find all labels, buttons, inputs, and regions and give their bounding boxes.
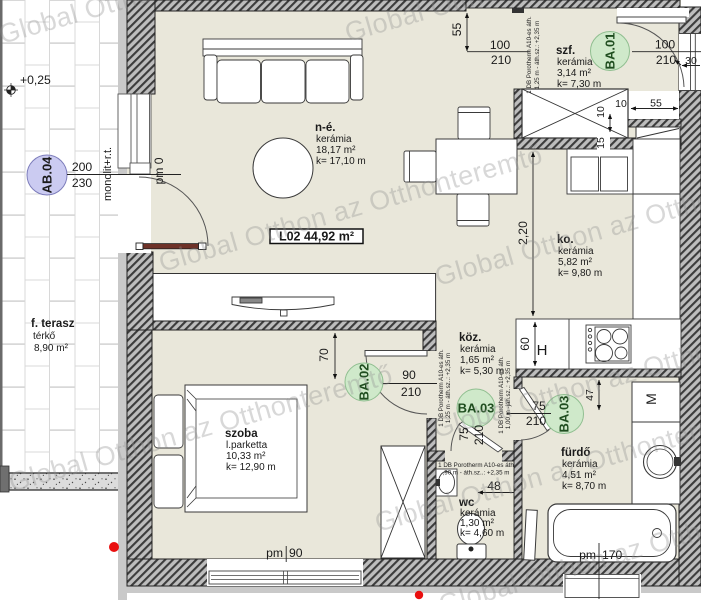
svg-text:90: 90 <box>402 368 416 382</box>
svg-text:10,33 m²: 10,33 m² <box>226 451 266 462</box>
svg-text:10: 10 <box>595 106 607 118</box>
svg-text:3,14 m²: 3,14 m² <box>557 68 592 79</box>
svg-text:BA.01: BA.01 <box>603 33 618 70</box>
svg-text:M: M <box>643 393 659 405</box>
svg-text:55: 55 <box>650 98 662 110</box>
svg-text:k= 12,90 m: k= 12,90 m <box>226 462 276 473</box>
svg-text:60: 60 <box>518 337 532 351</box>
svg-text:pm 0: pm 0 <box>152 157 166 184</box>
svg-text:kerámia: kerámia <box>460 344 496 355</box>
svg-text:55: 55 <box>450 23 464 37</box>
svg-text:10: 10 <box>615 98 627 110</box>
svg-text:k= 17,10 m: k= 17,10 m <box>316 156 366 167</box>
svg-text:monolit+r.t.: monolit+r.t. <box>102 147 114 201</box>
svg-text:kerámia: kerámia <box>316 134 352 145</box>
svg-text:1,65 m²: 1,65 m² <box>460 355 495 366</box>
svg-text:1 DB Porotherm A10-es áth: 1 DB Porotherm A10-es áth <box>438 462 514 469</box>
svg-text:pm: pm <box>266 546 283 560</box>
svg-text:kerámia: kerámia <box>557 57 593 68</box>
svg-text:1 DB Porotherm A10-es áth.: 1 DB Porotherm A10-es áth. <box>526 16 533 94</box>
svg-text:l.parketta: l.parketta <box>226 440 268 451</box>
svg-text:210: 210 <box>491 53 512 67</box>
svg-text:18,17 m²: 18,17 m² <box>316 145 356 156</box>
svg-text:15: 15 <box>595 137 607 149</box>
svg-text:200: 200 <box>72 160 93 174</box>
svg-text:n-é.: n-é. <box>315 122 335 134</box>
svg-text:100: 100 <box>655 38 676 52</box>
svg-text:8,90 m²: 8,90 m² <box>34 343 69 354</box>
svg-text:k= 7,30 m: k= 7,30 m <box>557 79 601 90</box>
svg-text:f. terasz: f. terasz <box>31 318 75 330</box>
svg-text:térkő: térkő <box>33 331 56 342</box>
svg-text:szf.: szf. <box>556 45 575 57</box>
svg-text:100: 100 <box>490 38 511 52</box>
svg-text:+0,25: +0,25 <box>20 73 51 87</box>
svg-text:5,82 m²: 5,82 m² <box>558 257 593 268</box>
svg-text:k= 4,60 m: k= 4,60 m <box>460 528 504 539</box>
svg-text:210: 210 <box>401 385 422 399</box>
svg-text:H: H <box>537 342 548 359</box>
svg-text:köz.: köz. <box>459 332 481 344</box>
svg-text:230: 230 <box>72 176 93 190</box>
svg-text:AB.04: AB.04 <box>40 156 55 194</box>
svg-text:1,25 m - áth.sz.: +2,35 m: 1,25 m - áth.sz.: +2,35 m <box>534 21 541 90</box>
svg-text:210: 210 <box>656 53 677 67</box>
svg-text:k= 9,80 m: k= 9,80 m <box>558 268 602 279</box>
svg-text:70: 70 <box>317 348 331 362</box>
svg-text:90: 90 <box>289 546 303 560</box>
